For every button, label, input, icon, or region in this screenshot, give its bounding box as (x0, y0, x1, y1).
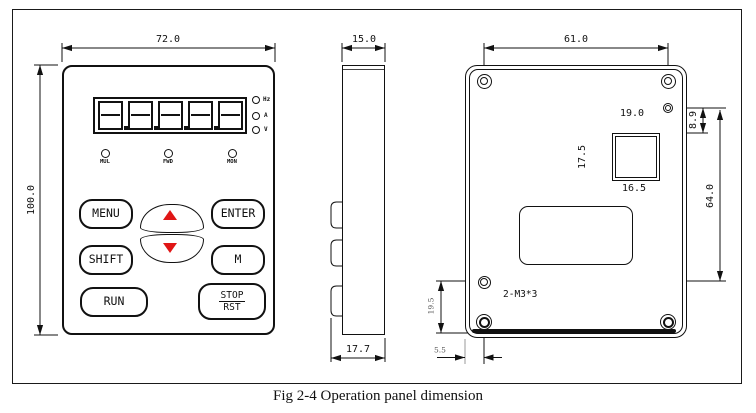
back-recess-area (519, 206, 633, 265)
fwd-led-label: FWD (163, 160, 173, 166)
back-case-inner-outline (469, 69, 683, 334)
stop-label: STOP (219, 291, 246, 303)
menu-button-label: MENU (92, 208, 120, 220)
volt-indicator-icon (252, 126, 260, 134)
screw-hole-top-right (661, 74, 676, 89)
hz-indicator-label: Hz (263, 97, 270, 103)
mon-led-icon (228, 149, 237, 158)
figure-canvas: Hz A V MUL FWD MON MENU ENTER SHIFT M RU… (0, 0, 756, 413)
screw-hole-small-right (663, 103, 673, 113)
screw-note: 2-M3*3 (503, 290, 537, 300)
display-digit (98, 101, 123, 130)
m-button: M (211, 245, 265, 275)
decimal-point (214, 126, 218, 130)
dim-back-hole-span: 61.0 (564, 35, 588, 45)
display-digit (188, 101, 213, 130)
screw-hole-bottom-right (660, 314, 676, 330)
dim-screw-drop: 8.9 (689, 111, 699, 129)
mon-led-label: MON (227, 160, 237, 166)
shift-button: SHIFT (79, 245, 133, 275)
dim-rj45-width: 16.5 (622, 184, 646, 194)
screw-hole-bottom-left (476, 314, 492, 330)
back-bottom-bar (472, 329, 676, 333)
dim-front-width: 72.0 (156, 35, 180, 45)
shift-button-label: SHIFT (89, 254, 124, 266)
volt-indicator-label: V (264, 127, 268, 133)
dim-edge-offset: 5.5 (434, 346, 446, 354)
enter-button: ENTER (211, 199, 265, 229)
fwd-led-icon (164, 149, 173, 158)
rj45-connector-inner (615, 136, 658, 178)
dim-rj45-height: 17.5 (578, 145, 588, 169)
dim-side-bottom-depth: 17.7 (346, 345, 370, 355)
side-view-body (342, 65, 385, 335)
display-digit (218, 101, 243, 130)
m3-screw-hole (478, 276, 491, 289)
dim-hole-vertical: 64.0 (706, 184, 716, 208)
m-button-label: M (235, 254, 242, 266)
decimal-point (124, 126, 128, 130)
dim-rj45-to-screw: 19.0 (620, 109, 644, 119)
amp-indicator-icon (252, 112, 260, 120)
figure-caption: Fig 2-4 Operation panel dimension (273, 388, 483, 405)
display-digit (128, 101, 153, 130)
mul-led-icon (101, 149, 110, 158)
amp-indicator-label: A (264, 113, 268, 119)
screw-hole-top-left (477, 74, 492, 89)
menu-button: MENU (79, 199, 133, 229)
up-arrow-icon (163, 210, 177, 220)
down-arrow-icon (163, 243, 177, 253)
stop-rst-button: STOP RST (198, 283, 266, 320)
run-button: RUN (80, 287, 148, 317)
decimal-point (154, 126, 158, 130)
run-button-label: RUN (104, 296, 125, 308)
decimal-point (184, 126, 188, 130)
rst-label: RST (223, 303, 240, 313)
dim-side-depth: 15.0 (352, 35, 376, 45)
dim-bottom-section: 19.5 (427, 298, 435, 315)
dim-front-height: 100.0 (27, 185, 37, 215)
display-digit (158, 101, 183, 130)
mul-led-label: MUL (100, 160, 110, 166)
side-view-bezel-line (343, 69, 384, 70)
enter-button-label: ENTER (221, 208, 256, 220)
hz-indicator-icon (252, 96, 260, 104)
